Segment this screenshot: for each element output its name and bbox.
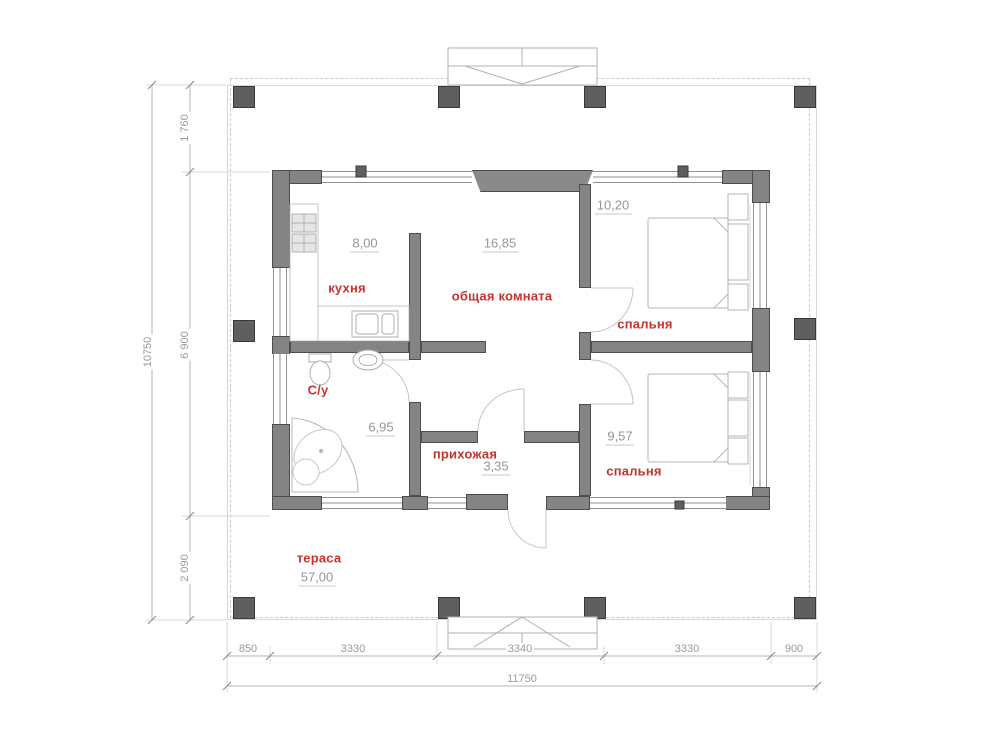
dim-bottom-segment-4: 3330	[673, 643, 701, 655]
dim-left-segment-3: 2 090	[179, 552, 191, 584]
room-area-hallway: 3,35	[481, 459, 510, 476]
bathtub-icon	[285, 418, 358, 492]
room-area-bedroom2: 9,57	[605, 429, 634, 446]
dim-left-segment-2: 6 900	[179, 329, 191, 361]
bed-icon	[648, 194, 748, 310]
dim-bottom-total: 11750	[505, 673, 539, 685]
room-label-bedroom1: спальня	[617, 317, 672, 332]
bed-icon	[648, 372, 748, 464]
kitchen-sink-icon	[352, 311, 398, 337]
sink-icon	[353, 350, 383, 370]
floor-plan-canvas: кухня 8,00 общая комната 16,85 спальня 1…	[0, 0, 1000, 750]
room-label-bedroom2: спальня	[606, 464, 661, 479]
dim-bottom-segment-5: 900	[783, 643, 805, 655]
plan-linework	[0, 0, 1000, 750]
room-label-terrace: тераса	[297, 551, 342, 566]
room-area-kitchen: 8,00	[350, 236, 379, 253]
dim-bottom-segment-2: 3330	[339, 643, 367, 655]
room-area-bathroom: 6,95	[366, 420, 395, 437]
dim-bottom-segment-1: 850	[237, 643, 259, 655]
room-area-living: 16,85	[482, 236, 519, 253]
room-area-terrace: 57,00	[299, 570, 336, 587]
room-label-bathroom: С/у	[308, 383, 329, 398]
room-label-kitchen: кухня	[328, 281, 366, 296]
toilet-icon	[309, 354, 331, 385]
steps-icon	[448, 48, 597, 85]
room-area-bedroom1: 10,20	[595, 198, 632, 215]
dim-bottom-segment-3: 3340	[506, 643, 534, 655]
dim-left-total: 10750	[142, 335, 154, 370]
dim-left-segment-1: 1 760	[179, 112, 191, 144]
room-label-living: общая комната	[452, 289, 553, 304]
